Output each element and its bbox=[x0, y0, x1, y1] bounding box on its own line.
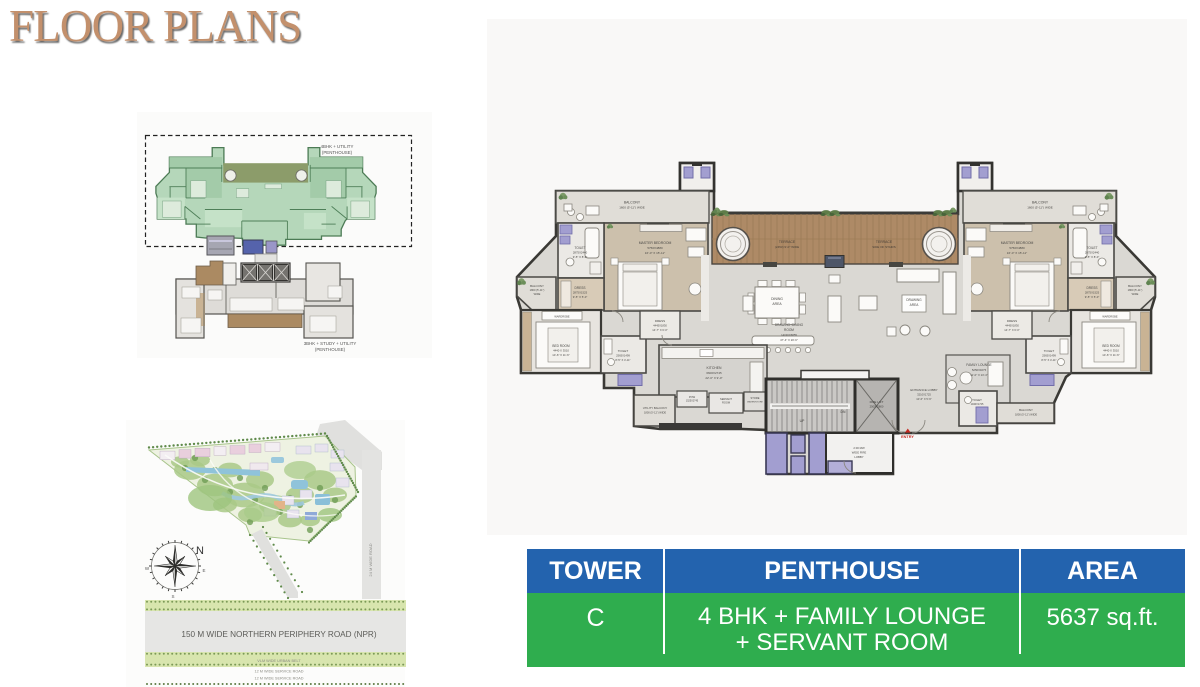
svg-text:9'-5" X 5'-0": 9'-5" X 5'-0" bbox=[573, 295, 588, 299]
svg-text:1940X1725: 1940X1725 bbox=[971, 403, 984, 406]
svg-text:16'-0" X 15'-11": 16'-0" X 15'-11" bbox=[1007, 251, 1027, 255]
svg-text:TOILET: TOILET bbox=[574, 246, 585, 250]
svg-text:DRESS: DRESS bbox=[575, 286, 586, 290]
svg-text:MASTER BEDROOM: MASTER BEDROOM bbox=[639, 241, 672, 245]
svg-text:1600 (5'-11") WIDE: 1600 (5'-11") WIDE bbox=[619, 206, 645, 210]
svg-text:5750X4880: 5750X4880 bbox=[1009, 246, 1025, 250]
svg-text:DRESS: DRESS bbox=[1087, 286, 1098, 290]
svg-text:TOILET: TOILET bbox=[972, 398, 982, 402]
svg-text:ROOM: ROOM bbox=[784, 328, 794, 332]
svg-text:14'-7" X 6'-0": 14'-7" X 6'-0" bbox=[652, 328, 668, 332]
svg-text:2565X1499: 2565X1499 bbox=[1042, 354, 1056, 358]
svg-text:2875X2440: 2875X2440 bbox=[573, 251, 588, 255]
svg-text:4440 X 3510: 4440 X 3510 bbox=[1103, 349, 1119, 353]
svg-text:UTILITY BALCONY: UTILITY BALCONY bbox=[643, 406, 668, 410]
svg-text:11'-0" X 13'-4": 11'-0" X 13'-4" bbox=[970, 373, 987, 377]
svg-text:8'-5" X 4'-11": 8'-5" X 4'-11" bbox=[1041, 358, 1056, 362]
svg-text:2875X1525: 2875X1525 bbox=[1085, 291, 1100, 295]
svg-text:BALCONY: BALCONY bbox=[530, 284, 544, 288]
svg-text:9'-5" X 5'-0": 9'-5" X 5'-0" bbox=[1085, 295, 1100, 299]
svg-text:FAMILY LOUNGE: FAMILY LOUNGE bbox=[966, 363, 991, 367]
svg-text:POW: POW bbox=[689, 395, 696, 399]
svg-text:WIDE FIRE: WIDE FIRE bbox=[852, 451, 867, 455]
svg-text:AREA: AREA bbox=[910, 303, 920, 307]
svg-text:1600 (5'-11") WIDE: 1600 (5'-11") WIDE bbox=[1027, 206, 1053, 210]
svg-text:2:00 MW: 2:00 MW bbox=[853, 446, 865, 450]
svg-text:TOILET: TOILET bbox=[1086, 246, 1097, 250]
svg-text:2500X2800: 2500X2800 bbox=[870, 405, 884, 409]
svg-text:LOBBY: LOBBY bbox=[854, 455, 863, 459]
svg-text:TERRACE: TERRACE bbox=[876, 240, 893, 244]
svg-text:ROOM: ROOM bbox=[722, 401, 730, 405]
svg-text:BALCONY: BALCONY bbox=[624, 201, 641, 205]
svg-text:WIDE: WIDE bbox=[534, 292, 541, 296]
svg-text:TOILET: TOILET bbox=[618, 349, 629, 353]
svg-text:ENTRANCE LOBBY: ENTRANCE LOBBY bbox=[910, 388, 937, 392]
svg-text:TOILET: TOILET bbox=[1044, 349, 1055, 353]
svg-text:BED ROOM: BED ROOM bbox=[552, 344, 570, 348]
svg-text:(2453) 9'-0" WIDE: (2453) 9'-0" WIDE bbox=[775, 245, 799, 249]
svg-text:22'-0" X 9'-0": 22'-0" X 9'-0" bbox=[705, 376, 722, 380]
svg-text:BALCONY: BALCONY bbox=[1019, 408, 1033, 412]
svg-text:4445X1830: 4445X1830 bbox=[1005, 324, 1019, 328]
svg-text:14'-6" X 11'-6": 14'-6" X 11'-6" bbox=[552, 353, 569, 357]
svg-text:47'-4" X 20'-6": 47'-4" X 20'-6" bbox=[780, 338, 798, 342]
svg-text:FIRE LIFT: FIRE LIFT bbox=[870, 400, 884, 404]
svg-text:DRESS: DRESS bbox=[1007, 319, 1017, 323]
svg-text:DRESS: DRESS bbox=[655, 319, 665, 323]
svg-text:DRAWING+DINING: DRAWING+DINING bbox=[775, 323, 804, 327]
svg-text:2565X1499: 2565X1499 bbox=[616, 354, 630, 358]
svg-text:1800 (5'-11") WIDE: 1800 (5'-11") WIDE bbox=[644, 411, 666, 415]
svg-text:ENTRY: ENTRY bbox=[901, 435, 914, 439]
svg-text:9'-5" X 8'-0": 9'-5" X 8'-0" bbox=[1085, 255, 1100, 259]
svg-text:9'-5" X 8'-0": 9'-5" X 8'-0" bbox=[573, 255, 588, 259]
svg-text:TERRACE: TERRACE bbox=[779, 240, 796, 244]
svg-text:KITCHEN: KITCHEN bbox=[707, 366, 722, 370]
svg-text:SERVANT: SERVANT bbox=[720, 397, 732, 401]
svg-text:WATER/STORE: WATER/STORE bbox=[747, 401, 763, 404]
svg-text:16'-0" X 15'-11": 16'-0" X 15'-11" bbox=[645, 251, 665, 255]
svg-text:1800 (5'-11"): 1800 (5'-11") bbox=[530, 288, 545, 292]
svg-text:BALCONY: BALCONY bbox=[1128, 284, 1142, 288]
svg-text:3210X1725: 3210X1725 bbox=[917, 393, 931, 397]
svg-text:2875X2440: 2875X2440 bbox=[1085, 251, 1100, 255]
svg-text:8'-5" X 4'-11": 8'-5" X 4'-11" bbox=[615, 358, 630, 362]
svg-text:1800 (5'-11"): 1800 (5'-11") bbox=[1128, 288, 1143, 292]
svg-text:WIDE: WIDE bbox=[1132, 292, 1139, 296]
svg-text:STORE: STORE bbox=[751, 396, 760, 400]
svg-text:UP: UP bbox=[800, 419, 805, 423]
svg-text:DINING: DINING bbox=[771, 297, 783, 301]
svg-text:5750X4880: 5750X4880 bbox=[647, 246, 663, 250]
svg-text:AREA: AREA bbox=[772, 302, 782, 306]
svg-text:4445X1830: 4445X1830 bbox=[653, 324, 667, 328]
svg-text:4440 X 3510: 4440 X 3510 bbox=[553, 349, 569, 353]
svg-text:WARDROBE: WARDROBE bbox=[1102, 315, 1117, 319]
svg-text:2875X1525: 2875X1525 bbox=[573, 291, 588, 295]
svg-text:6600X2745: 6600X2745 bbox=[706, 371, 722, 375]
svg-text:DN: DN bbox=[841, 410, 846, 414]
svg-text:14030X6855: 14030X6855 bbox=[781, 333, 797, 337]
svg-text:14'-6" X 11'-6": 14'-6" X 11'-6" bbox=[1102, 353, 1119, 357]
svg-text:WARDROBE: WARDROBE bbox=[554, 315, 569, 319]
svg-text:BED ROOM: BED ROOM bbox=[1102, 344, 1120, 348]
svg-text:10'-6" X 5'-6": 10'-6" X 5'-6" bbox=[916, 397, 932, 401]
svg-text:1525X2745: 1525X2745 bbox=[686, 400, 699, 403]
svg-text:14'-7" X 6'-0": 14'-7" X 6'-0" bbox=[1004, 328, 1020, 332]
svg-text:MASTER BEDROOM: MASTER BEDROOM bbox=[1001, 241, 1034, 245]
svg-text:1800 (5'-11") WIDE: 1800 (5'-11") WIDE bbox=[1015, 413, 1037, 417]
svg-text:DRAWING: DRAWING bbox=[906, 298, 922, 302]
svg-text:SIDE OF STAIRS: SIDE OF STAIRS bbox=[872, 245, 895, 249]
svg-text:5250X4075: 5250X4075 bbox=[972, 368, 987, 372]
svg-text:BALCONY: BALCONY bbox=[1032, 201, 1049, 205]
